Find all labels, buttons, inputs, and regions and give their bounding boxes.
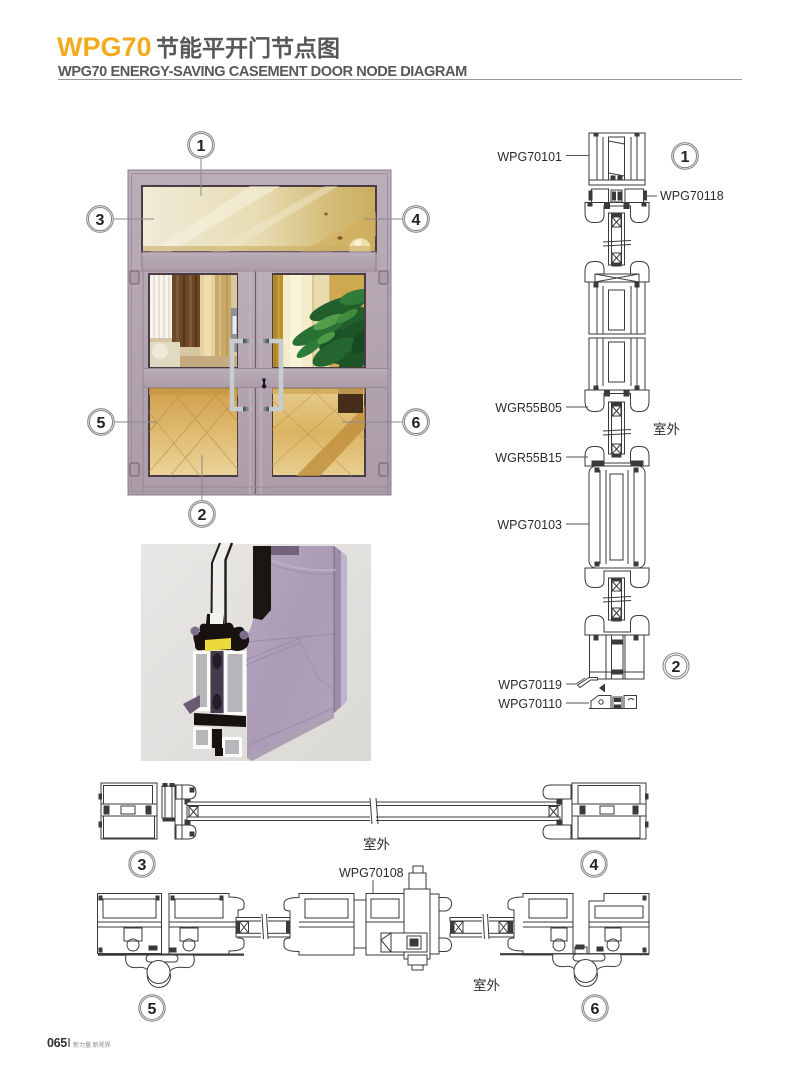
svg-text:4: 4 [590,857,599,874]
svg-text:室外: 室外 [473,977,500,993]
svg-text:WPG70108: WPG70108 [339,866,404,880]
svg-text:6: 6 [591,1001,600,1018]
svg-text:室外: 室外 [363,836,390,852]
svg-text:3: 3 [138,857,147,874]
svg-text:5: 5 [148,1001,157,1018]
